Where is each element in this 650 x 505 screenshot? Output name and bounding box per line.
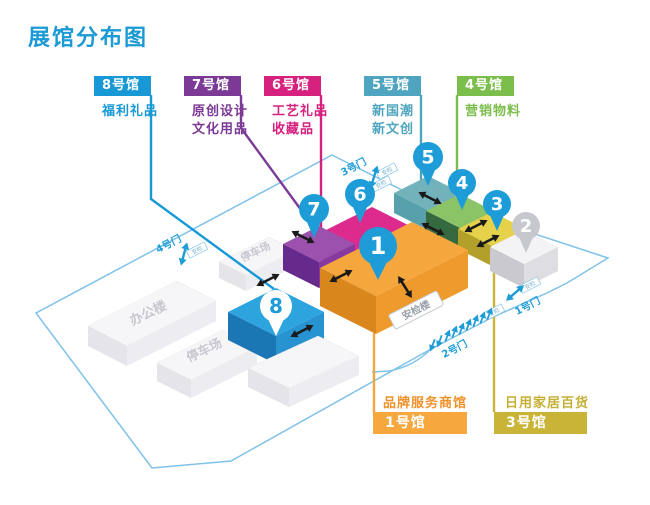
pin-number: 3	[491, 194, 504, 215]
desc-hall-6: 工艺礼品 收藏品	[272, 103, 328, 139]
pin-number: 8	[269, 294, 283, 318]
gate3-label: 3号门	[338, 155, 368, 179]
page-title: 展馆分布图	[28, 20, 148, 52]
tab-hall-6: 6号馆	[264, 76, 321, 96]
desc-line: 原创设计	[192, 103, 248, 121]
pin-number: 1	[370, 232, 387, 260]
pin-number: 5	[421, 147, 434, 169]
tab-hall-7: 7号馆	[184, 76, 241, 96]
tab-hall-4: 4号馆	[457, 76, 514, 96]
desc-hall-4: 营销物料	[465, 103, 521, 121]
desc-hall-7: 原创设计 文化用品	[192, 103, 248, 139]
category-hall-1: 品牌服务商馆	[383, 392, 467, 411]
tab-hall-8: 8号馆	[94, 76, 151, 96]
pin-number: 2	[520, 216, 533, 237]
gate2-road	[372, 349, 431, 372]
pin-number: 4	[456, 173, 469, 194]
tab-hall-5: 5号馆	[364, 76, 421, 96]
desc-line: 收藏品	[272, 121, 328, 139]
gate4-label: 4号门	[153, 232, 183, 256]
pin-hall-5: 5	[413, 142, 443, 186]
desc-line: 新文创	[372, 121, 414, 139]
checkpoint-box: 安检	[186, 242, 207, 258]
pin-number: 7	[307, 199, 320, 221]
desc-line: 营销物料	[465, 103, 521, 121]
exhibition-map-page: 办公楼 停车场 停车场	[0, 0, 650, 505]
tab-hall-1: 1号馆	[373, 412, 467, 434]
desc-hall-5: 新国潮 新文创	[372, 103, 414, 139]
desc-line: 文化用品	[192, 121, 248, 139]
pin-number: 6	[353, 184, 366, 206]
desc-line: 福利礼品	[102, 103, 158, 121]
desc-line: 新国潮	[372, 103, 414, 121]
gate2-label: 2号门	[439, 337, 469, 361]
category-hall-3: 日用家居百货	[505, 392, 589, 411]
gate1-label: 1号门	[512, 294, 542, 318]
desc-hall-8: 福利礼品	[102, 103, 158, 121]
tab-hall-3: 3号馆	[494, 412, 587, 434]
desc-line: 工艺礼品	[272, 103, 328, 121]
